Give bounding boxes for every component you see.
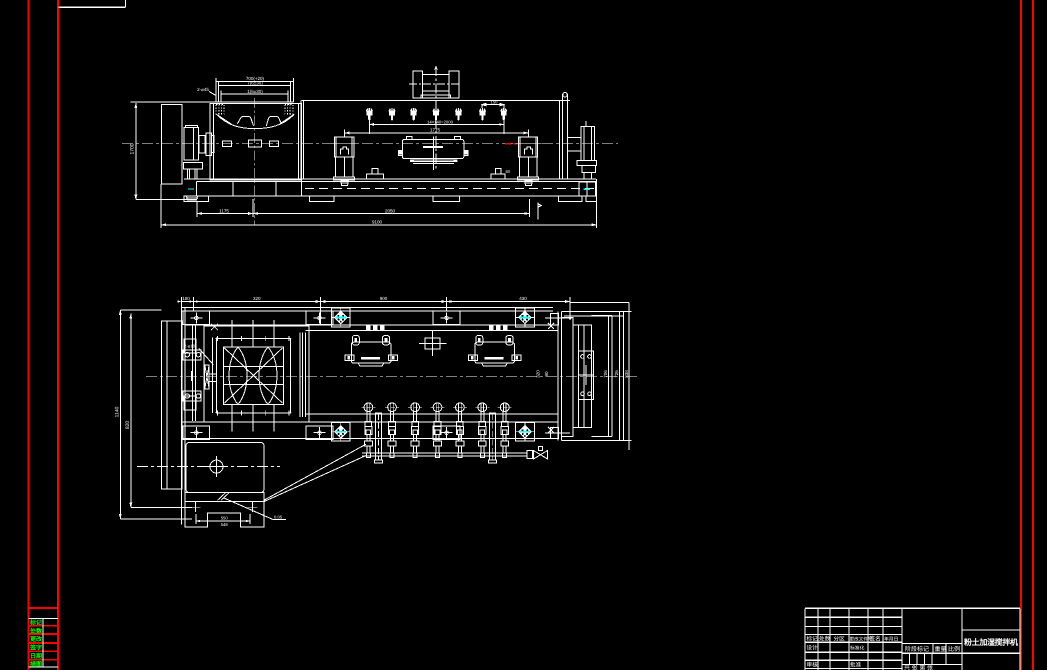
svg-text:90: 90 — [544, 371, 549, 377]
svg-text:处数: 处数 — [819, 636, 831, 643]
svg-text:0.05: 0.05 — [274, 514, 283, 519]
svg-text:签字: 签字 — [29, 644, 42, 652]
svg-text:2-⌀18: 2-⌀18 — [184, 344, 196, 349]
svg-text:重量: 重量 — [935, 646, 947, 653]
svg-text:签名: 签名 — [870, 636, 881, 643]
svg-text:日期: 日期 — [30, 652, 42, 660]
svg-text:320: 320 — [536, 370, 541, 378]
svg-text:2-⌀45: 2-⌀45 — [197, 87, 209, 92]
svg-text:7(6±30): 7(6±30) — [247, 81, 263, 86]
svg-text:320: 320 — [253, 296, 261, 301]
svg-text:更改: 更改 — [30, 635, 43, 643]
svg-text:820: 820 — [125, 421, 131, 430]
svg-text:726: 726 — [614, 370, 619, 378]
svg-text:批准: 批准 — [850, 662, 862, 669]
svg-text:A: A — [434, 66, 438, 72]
svg-text:粉土加湿搅拌机: 粉土加湿搅拌机 — [964, 638, 1018, 647]
svg-text:标记: 标记 — [807, 636, 819, 643]
svg-text:标准化: 标准化 — [850, 645, 865, 652]
svg-text:2050: 2050 — [385, 208, 396, 213]
svg-text:设计: 设计 — [807, 645, 819, 652]
svg-text:1(6±30): 1(6±30) — [247, 89, 263, 94]
svg-text:80: 80 — [506, 169, 511, 174]
svg-text:1140: 1140 — [114, 406, 120, 417]
svg-text:审核: 审核 — [807, 662, 819, 669]
svg-text:年月日: 年月日 — [884, 636, 898, 643]
svg-text:548: 548 — [221, 522, 229, 527]
svg-text:9100: 9100 — [372, 220, 383, 225]
svg-text:430: 430 — [519, 296, 527, 301]
svg-text:处数: 处数 — [29, 627, 43, 635]
svg-text:900: 900 — [380, 296, 388, 301]
svg-text:150: 150 — [491, 100, 499, 105]
svg-text:阶段标记: 阶段标记 — [905, 645, 929, 653]
svg-text:1175: 1175 — [219, 208, 229, 213]
svg-text:180: 180 — [182, 296, 190, 301]
svg-text:1700: 1700 — [130, 143, 136, 154]
svg-text:14×140=2000: 14×140=2000 — [427, 119, 454, 124]
svg-text:比例: 比例 — [948, 645, 960, 653]
svg-text:分区: 分区 — [834, 636, 846, 643]
svg-text:706: 706 — [603, 370, 608, 378]
svg-text:838: 838 — [624, 370, 629, 378]
svg-text:1775: 1775 — [430, 128, 441, 133]
svg-text:550: 550 — [221, 516, 229, 521]
svg-text:标记: 标记 — [29, 619, 42, 627]
svg-text:描图: 描图 — [30, 660, 42, 668]
